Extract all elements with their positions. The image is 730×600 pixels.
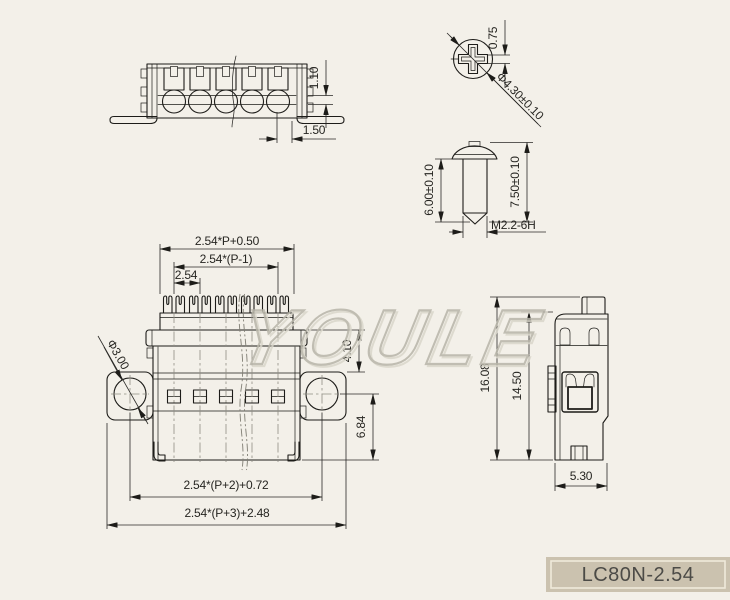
dimension-pitch: 2.54 <box>174 268 200 294</box>
watermark-text: YOULE <box>231 294 553 381</box>
dim-top-width-label: 2.54*P+0.50 <box>195 234 260 248</box>
dim-depth-label: 5.30 <box>570 469 593 483</box>
break-line <box>232 56 236 127</box>
screw-heads-top <box>163 90 290 113</box>
clamp-claw-left <box>566 374 577 387</box>
contact-bump <box>560 328 570 345</box>
dimension-total-width: 2.54*(P+3)+2.48 <box>107 423 346 529</box>
technical-drawing: 1.10 1.50 0.75 Φ4.30±0.10 <box>0 0 730 600</box>
dimension-slot-height: 1.10 <box>307 60 333 128</box>
dimension-depth: 5.30 <box>555 463 607 491</box>
wire-slots <box>164 67 288 91</box>
dim-pitch-label: 2.54 <box>175 268 198 282</box>
top-view: 1.10 1.50 <box>110 56 344 143</box>
watermark: YOULE YOULE <box>231 294 556 383</box>
screw-head-view: 0.75 Φ4.30±0.10 <box>447 20 547 127</box>
part-number: LC80N-2.54 <box>582 564 695 586</box>
dim-slot-width-label: 0.75 <box>486 26 500 49</box>
dimension-body-height: 6.84 <box>302 394 379 460</box>
dimension-hole-dia: Φ3.00 <box>98 336 148 424</box>
bottom-pin <box>571 446 587 460</box>
contact-bump <box>589 328 599 345</box>
dimension-thread-spec: M2.2-6H <box>449 216 546 238</box>
dim-body-height-label: 6.84 <box>354 415 368 438</box>
dim-hole-span-label: 2.54*(P+2)+0.72 <box>183 478 269 492</box>
foot-left <box>154 442 165 461</box>
dimension-total-len: 7.50±0.10 <box>489 143 533 223</box>
dim-total-width-label: 2.54*(P+3)+2.48 <box>184 506 270 520</box>
dim-thread-len-label: 6.00±0.10 <box>422 164 436 216</box>
dim-slot-height-label: 1.10 <box>307 66 321 89</box>
foot-right <box>288 442 299 461</box>
dim-screw-edge-label: 1.50 <box>303 123 326 137</box>
screw-thread <box>463 159 487 213</box>
dim-total-len-label: 7.50±0.10 <box>508 156 522 208</box>
dim-pin-span-label: 2.54*(P-1) <box>200 252 253 266</box>
clamp-claw-right <box>584 374 595 387</box>
dim-head-dia-label: Φ4.30±0.10 <box>493 70 546 123</box>
title-block: LC80N-2.54 <box>546 557 730 592</box>
top-tab <box>582 297 605 314</box>
dim-thread-spec-label: M2.2-6H <box>491 218 536 232</box>
screw-side-view: 6.00±0.10 7.50±0.10 M2.2-6H <box>422 142 546 239</box>
screw-head-dome <box>452 146 497 159</box>
